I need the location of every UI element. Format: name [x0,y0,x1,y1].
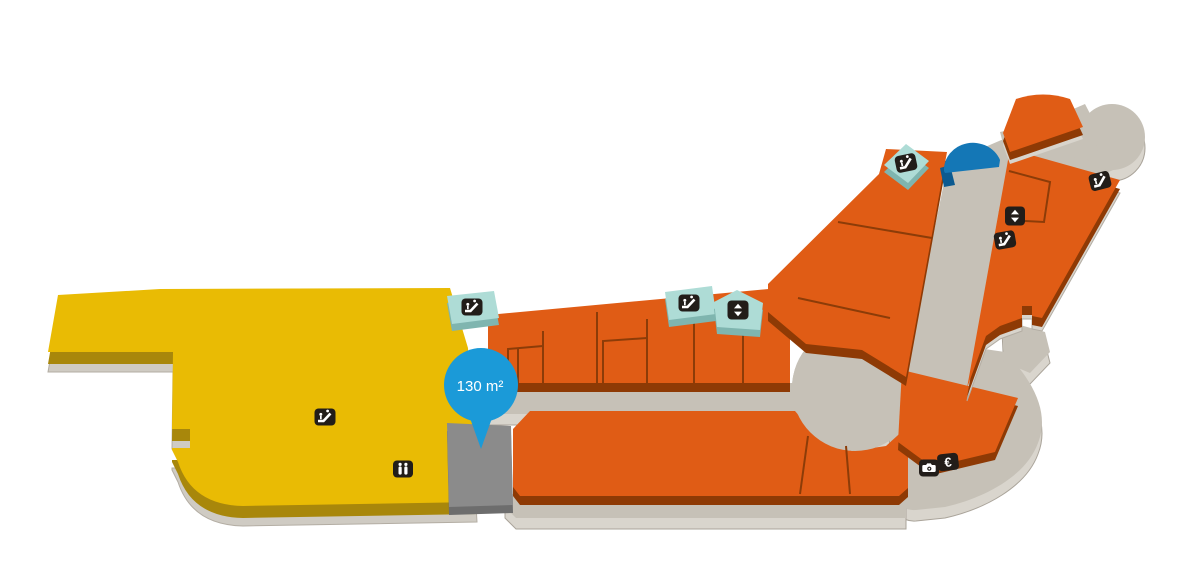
camera-icon[interactable] [919,460,939,477]
escalator-icon[interactable] [315,409,336,426]
mall-map-canvas: € 130 m² [0,0,1200,584]
escalator-icon[interactable] [462,299,483,316]
elevator-icon[interactable] [728,301,749,320]
toilets-icon[interactable] [393,461,413,478]
escalator-icon[interactable] [679,295,700,312]
escalator-icon[interactable] [993,230,1017,250]
euro-glyph: € [944,454,953,470]
euro-icon[interactable]: € [937,452,960,471]
floorplan-svg: € 130 m² [0,0,1200,584]
pin-area-label: 130 m² [457,378,504,395]
elevator-icon[interactable] [1005,207,1025,226]
